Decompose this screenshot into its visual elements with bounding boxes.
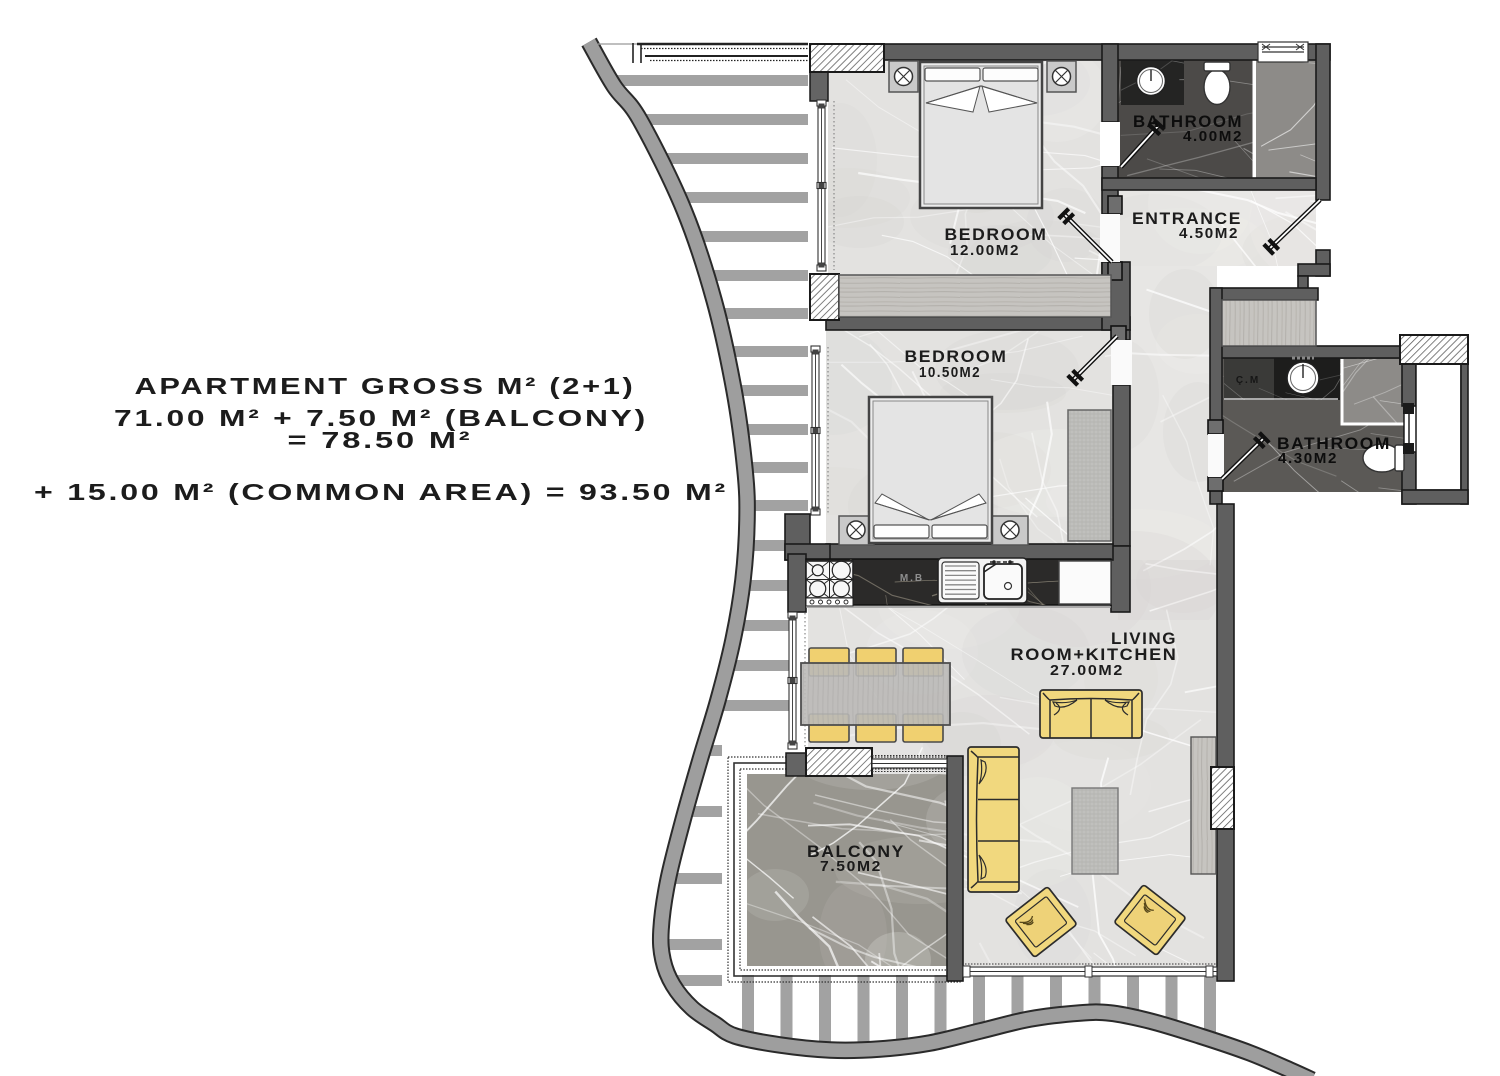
svg-text:BEDROOM: BEDROOM — [905, 348, 1008, 366]
svg-text:ROOM+KITCHEN: ROOM+KITCHEN — [1011, 646, 1178, 664]
svg-text:BEDROOM: BEDROOM — [945, 226, 1048, 244]
svg-text:+ 15.00 M² (COMMON AREA) = 93.: + 15.00 M² (COMMON AREA) = 93.50 M² — [34, 479, 728, 505]
svg-text:27.00M2: 27.00M2 — [1050, 663, 1124, 679]
svg-text:Ç.M: Ç.M — [1236, 375, 1260, 386]
svg-text:4.50M2: 4.50M2 — [1179, 226, 1239, 242]
svg-text:4.30M2: 4.30M2 — [1278, 451, 1338, 467]
svg-text:10.50M2: 10.50M2 — [919, 365, 981, 381]
svg-text:APARTMENT GROSS M² (2+1): APARTMENT GROSS M² (2+1) — [135, 373, 636, 399]
svg-text:M.B: M.B — [900, 573, 924, 584]
svg-text:7.50M2: 7.50M2 — [820, 859, 882, 875]
svg-text:= 78.50 M²: = 78.50 M² — [288, 427, 473, 453]
svg-text:4.00M2: 4.00M2 — [1183, 129, 1243, 145]
svg-text:12.00M2: 12.00M2 — [950, 243, 1020, 259]
